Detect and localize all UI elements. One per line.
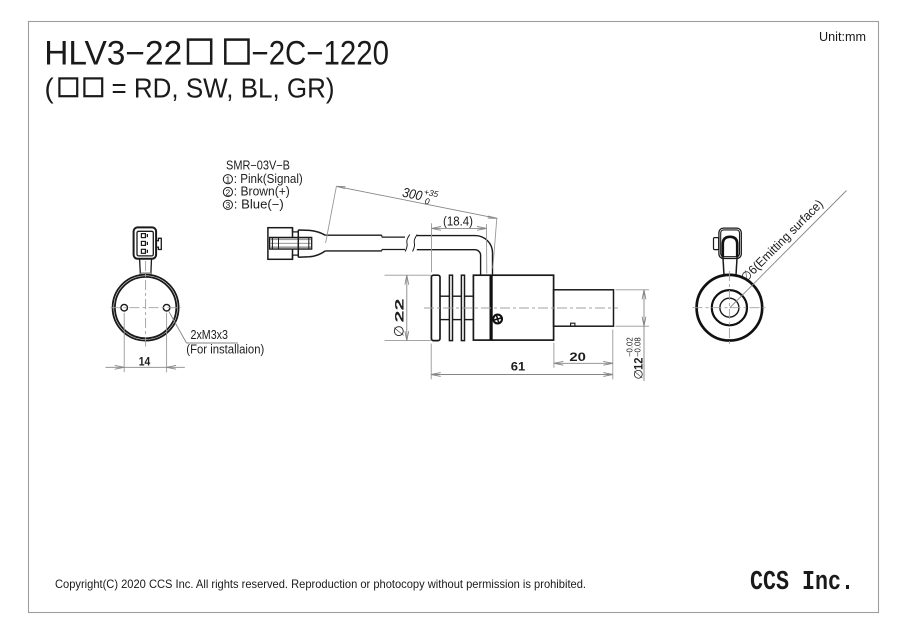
svg-text:−2C−1220: −2C−1220 [252,35,390,73]
svg-text:(For installaion): (For installaion) [186,343,264,357]
svg-text:SMR−03V−B: SMR−03V−B [226,158,290,172]
svg-text:61: 61 [511,360,526,374]
svg-text:14: 14 [139,354,151,368]
svg-text:= RD, SW, BL, GR): = RD, SW, BL, GR) [112,72,335,103]
svg-text:(18.4): (18.4) [443,215,473,229]
svg-text:2xM3x3: 2xM3x3 [191,328,229,342]
svg-text:22: 22 [392,298,406,323]
svg-text:: Blue(−): : Blue(−) [234,198,284,212]
svg-text:(: ( [45,72,54,103]
svg-text:2: 2 [226,187,231,197]
svg-text:Unit:mm: Unit:mm [819,29,866,44]
svg-text:HLV3−22: HLV3−22 [44,35,182,73]
svg-text:1: 1 [226,175,231,185]
svg-text:−0.08: −0.08 [634,337,643,357]
svg-text:Copyright(C) 2020 CCS Inc. All: Copyright(C) 2020 CCS Inc. All rights re… [55,577,586,591]
svg-text:20: 20 [569,350,586,364]
svg-text:: Brown(+): : Brown(+) [234,185,290,199]
svg-text:∅: ∅ [391,325,406,337]
svg-text:12: 12 [632,357,646,370]
svg-text:3: 3 [226,200,231,210]
svg-text:CCS Inc.: CCS Inc. [750,567,854,597]
